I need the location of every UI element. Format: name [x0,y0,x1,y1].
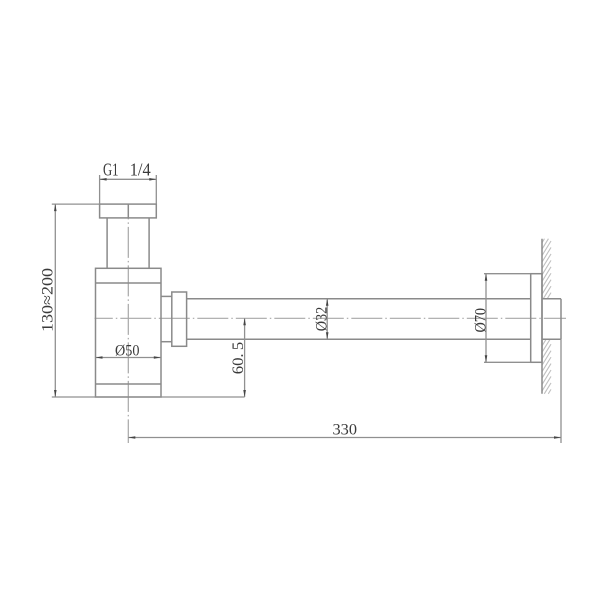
svg-text:1/4: 1/4 [130,160,151,180]
svg-text:330: 330 [333,420,357,439]
svg-text:Ø32: Ø32 [311,307,330,332]
svg-text:Ø70: Ø70 [470,308,489,333]
svg-text:60. 5: 60. 5 [228,342,247,375]
svg-text:Ø50: Ø50 [115,341,140,360]
svg-text:130≈200: 130≈200 [37,268,56,332]
svg-text:G1: G1 [103,160,119,180]
